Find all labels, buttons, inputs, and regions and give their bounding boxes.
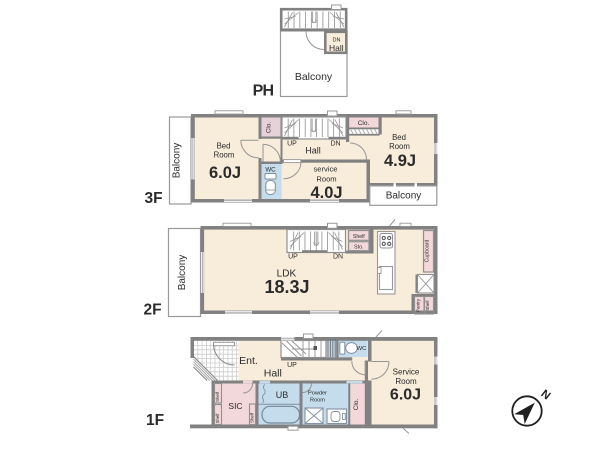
svg-text:Room: Room: [395, 377, 417, 386]
svg-text:Balcony: Balcony: [386, 191, 422, 202]
svg-text:4.9J: 4.9J: [384, 152, 416, 170]
svg-text:Room: Room: [389, 142, 410, 151]
svg-text:Shelf: Shelf: [425, 300, 430, 311]
svg-text:Shelf: Shelf: [353, 234, 365, 240]
svg-text:Pantry: Pantry: [416, 298, 421, 312]
svg-text:Shelf: Shelf: [250, 412, 255, 423]
svg-text:Clo.: Clo.: [358, 120, 370, 127]
svg-text:Service: Service: [393, 368, 420, 377]
svg-text:6.0J: 6.0J: [390, 387, 421, 404]
svg-text:Shelf: Shelf: [215, 413, 220, 424]
svg-text:6.0J: 6.0J: [209, 164, 241, 182]
svg-text:Balcony: Balcony: [295, 71, 333, 83]
svg-text:DN: DN: [330, 141, 340, 148]
svg-text:service: service: [313, 165, 337, 174]
svg-text:Hall: Hall: [305, 146, 321, 156]
svg-text:Ent.: Ent.: [239, 355, 258, 367]
svg-text:1F: 1F: [146, 412, 164, 429]
svg-text:Powder: Powder: [308, 391, 327, 397]
svg-text:SIC: SIC: [228, 401, 242, 411]
svg-text:UP: UP: [288, 254, 298, 261]
svg-text:Bed: Bed: [217, 142, 231, 151]
svg-text:UP: UP: [287, 141, 297, 148]
svg-text:Hall: Hall: [264, 368, 282, 380]
svg-text:Bed: Bed: [392, 133, 406, 142]
svg-text:Room: Room: [310, 398, 325, 404]
svg-text:Sto.: Sto.: [354, 244, 363, 250]
svg-text:Clo.: Clo.: [353, 399, 360, 411]
svg-text:Clo.: Clo.: [265, 122, 272, 133]
svg-text:PH: PH: [253, 83, 274, 100]
svg-text:Balcony: Balcony: [177, 255, 188, 291]
svg-text:UB: UB: [276, 390, 289, 400]
svg-text:18.3J: 18.3J: [264, 277, 309, 297]
svg-text:3F: 3F: [144, 190, 162, 207]
svg-text:WC: WC: [357, 346, 367, 352]
svg-text:DN: DN: [333, 254, 343, 261]
svg-text:2F: 2F: [143, 302, 161, 319]
svg-text:Room: Room: [214, 151, 235, 160]
svg-text:UP: UP: [287, 362, 297, 369]
svg-text:Hall: Hall: [329, 43, 344, 53]
svg-text:Cupboard: Cupboard: [425, 239, 431, 262]
svg-text:Shelf: Shelf: [215, 391, 220, 402]
svg-text:Balcony: Balcony: [172, 143, 183, 179]
svg-text:WC: WC: [265, 167, 276, 174]
svg-text:Room: Room: [316, 174, 336, 183]
svg-text:4.0J: 4.0J: [310, 184, 342, 202]
